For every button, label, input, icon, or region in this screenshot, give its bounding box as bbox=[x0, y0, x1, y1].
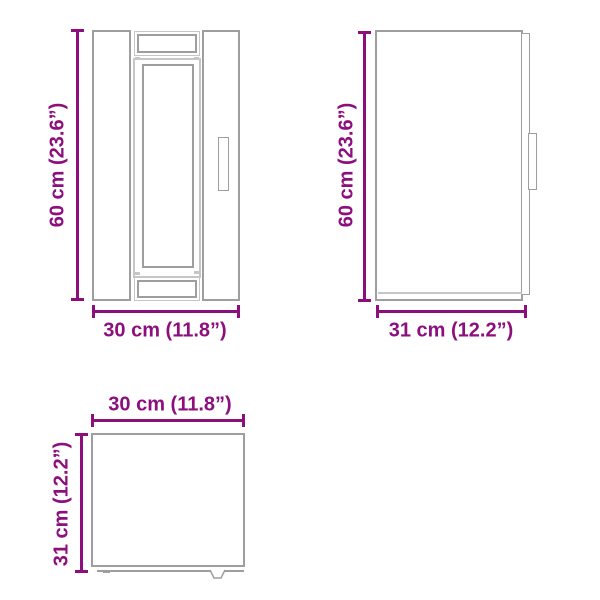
door-hinge-mark bbox=[135, 272, 140, 275]
side-depth-dimension-line bbox=[376, 310, 527, 313]
cabinet-door-panel bbox=[142, 64, 194, 268]
front-height-label: 60 cm (23.6”) bbox=[47, 103, 70, 228]
top-depth-label: 31 cm (12.2”) bbox=[51, 442, 74, 567]
side-depth-label: 31 cm (12.2”) bbox=[389, 320, 514, 343]
side-door-handle bbox=[528, 133, 537, 190]
front-width-label: 30 cm (11.8”) bbox=[103, 320, 226, 343]
top-width-label: 30 cm (11.8”) bbox=[108, 394, 231, 417]
side-height-dimension-line bbox=[363, 31, 366, 302]
side-height-label: 60 cm (23.6”) bbox=[336, 103, 359, 228]
top-door-handle-notch bbox=[209, 569, 227, 580]
diagram-canvas: 60 cm (23.6”) 30 cm (11.8”) 60 cm (23.6”… bbox=[0, 0, 600, 600]
cabinet-top-body bbox=[91, 433, 245, 567]
door-hinge-mark bbox=[135, 57, 140, 60]
cabinet-top-rail bbox=[134, 31, 200, 56]
door-hinge-mark bbox=[194, 57, 199, 60]
top-width-dimension-line bbox=[91, 419, 245, 422]
top-depth-dimension-line bbox=[80, 433, 83, 573]
front-width-dimension-line bbox=[92, 310, 240, 313]
cabinet-bottom-rail bbox=[134, 277, 200, 301]
cabinet-left-stile bbox=[92, 30, 131, 301]
front-height-dimension-line bbox=[76, 29, 79, 301]
top-corner-mark bbox=[103, 570, 110, 573]
side-bottom-edge-line bbox=[378, 292, 522, 294]
cabinet-side-body bbox=[375, 30, 523, 301]
front-door-handle bbox=[218, 137, 229, 191]
door-hinge-mark bbox=[194, 271, 199, 274]
